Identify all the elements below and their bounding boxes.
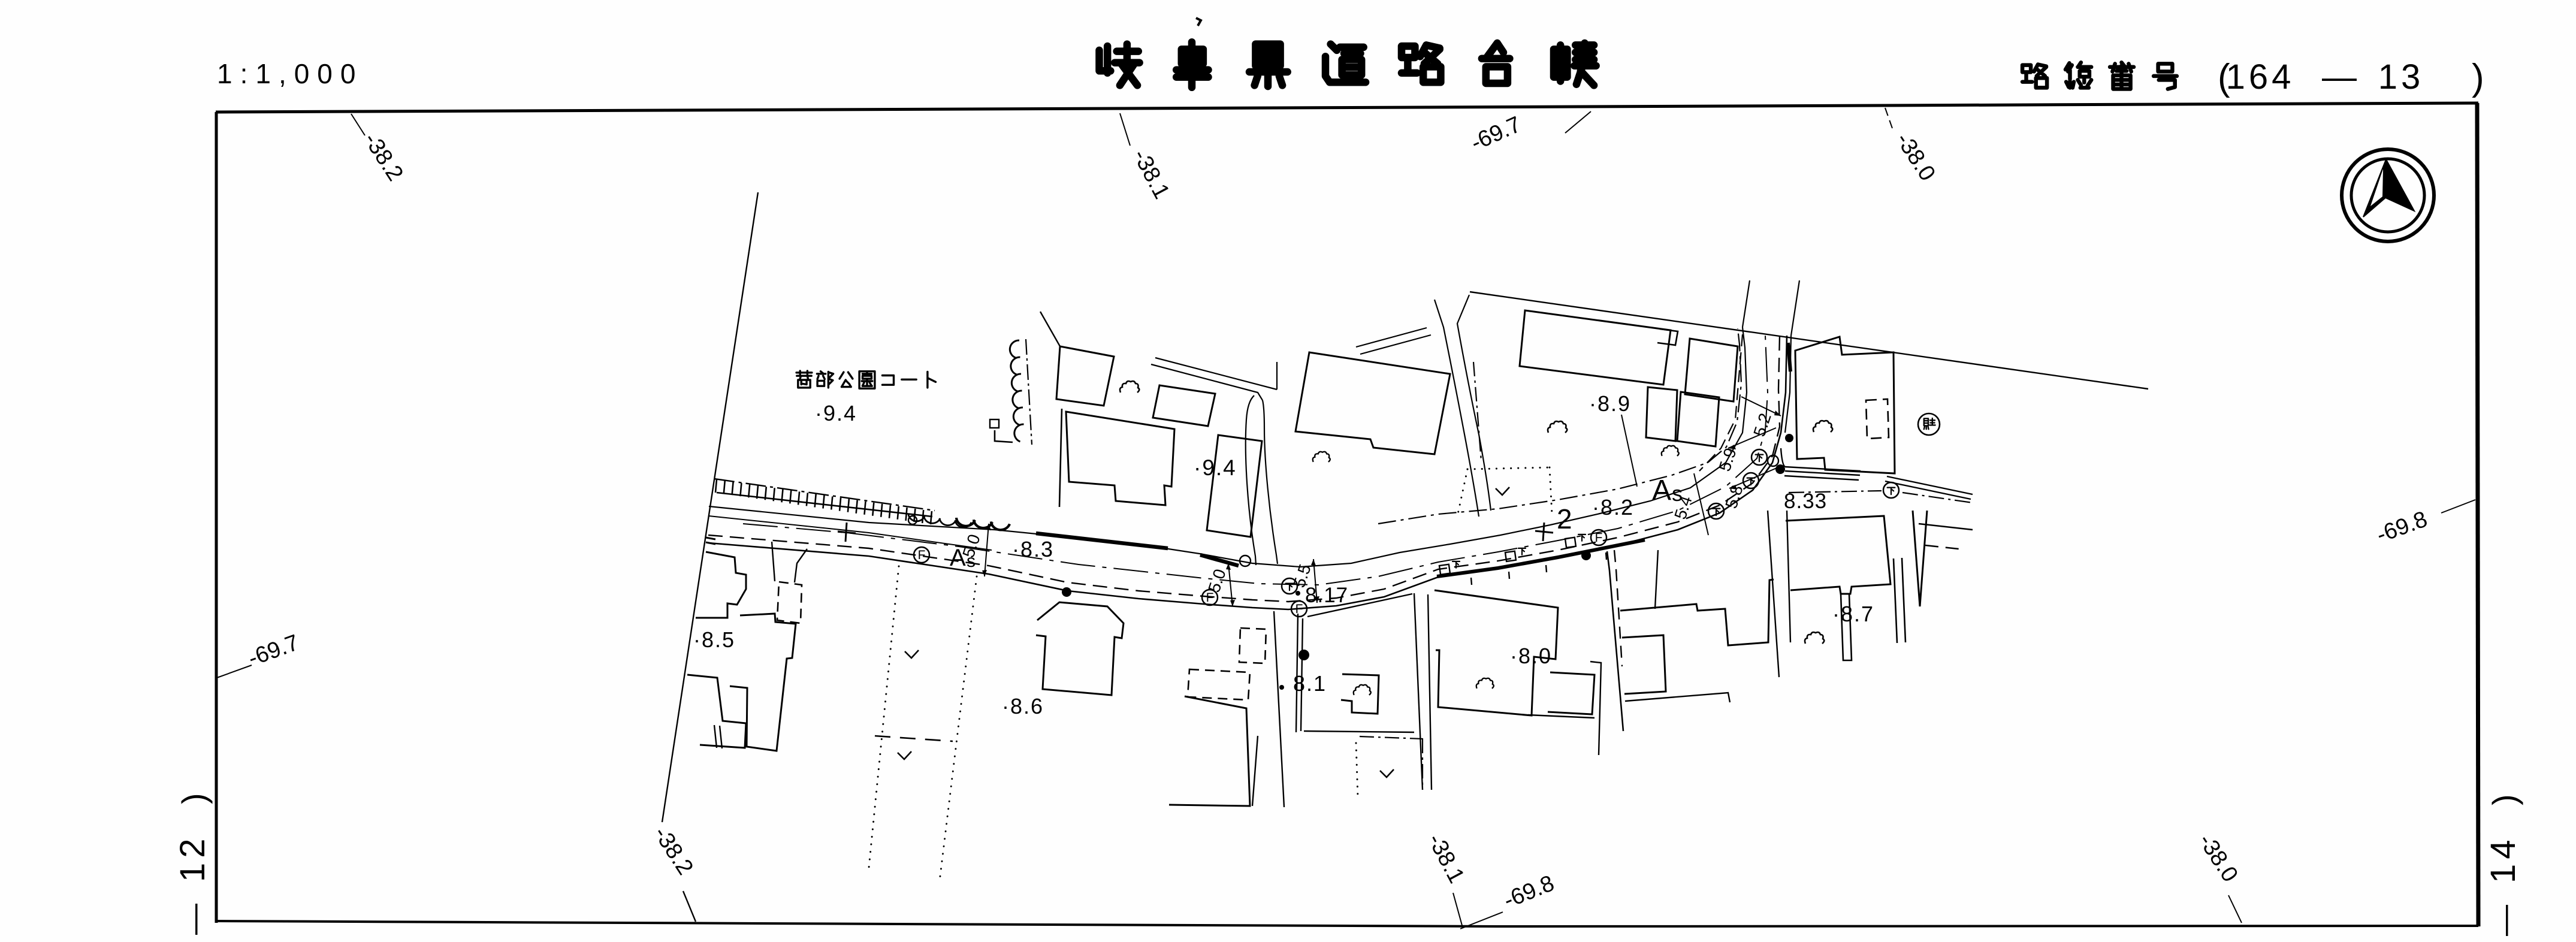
svg-text:): ) xyxy=(2486,794,2523,805)
svg-text:·9.4: ·9.4 xyxy=(1194,455,1237,480)
svg-text:·8.5: ·8.5 xyxy=(693,627,735,652)
svg-text:·8.9: ·8.9 xyxy=(1589,391,1631,416)
svg-text:): ) xyxy=(2472,57,2484,98)
svg-text:F: F xyxy=(918,548,926,562)
svg-text:F: F xyxy=(1295,602,1303,616)
svg-text:13: 13 xyxy=(2378,58,2424,96)
svg-text:F: F xyxy=(1595,531,1603,545)
svg-text:·8.7: ·8.7 xyxy=(1832,602,1874,626)
svg-text:8.17: 8.17 xyxy=(1305,584,1348,607)
svg-text:—: — xyxy=(2322,58,2357,96)
svg-text:14: 14 xyxy=(2484,835,2523,883)
svg-text:·8.2: ·8.2 xyxy=(1592,495,1634,520)
svg-text:12: 12 xyxy=(173,834,212,882)
svg-text:164: 164 xyxy=(2226,58,2295,96)
svg-text:): ) xyxy=(175,793,213,804)
svg-text:A: A xyxy=(1652,475,1671,506)
svg-text:F: F xyxy=(1206,591,1214,605)
svg-text:—: — xyxy=(177,904,212,935)
svg-text:·8.6: ·8.6 xyxy=(1002,694,1044,718)
svg-text:·8.0: ·8.0 xyxy=(1510,644,1552,668)
svg-text:·9.4: ·9.4 xyxy=(815,401,857,425)
svg-text:—: — xyxy=(2487,905,2522,936)
svg-text:1:1,000: 1:1,000 xyxy=(217,58,363,89)
svg-text:2: 2 xyxy=(1557,503,1572,535)
svg-text:8.1: 8.1 xyxy=(1293,671,1327,696)
svg-text:·8.3: ·8.3 xyxy=(1012,537,1054,561)
